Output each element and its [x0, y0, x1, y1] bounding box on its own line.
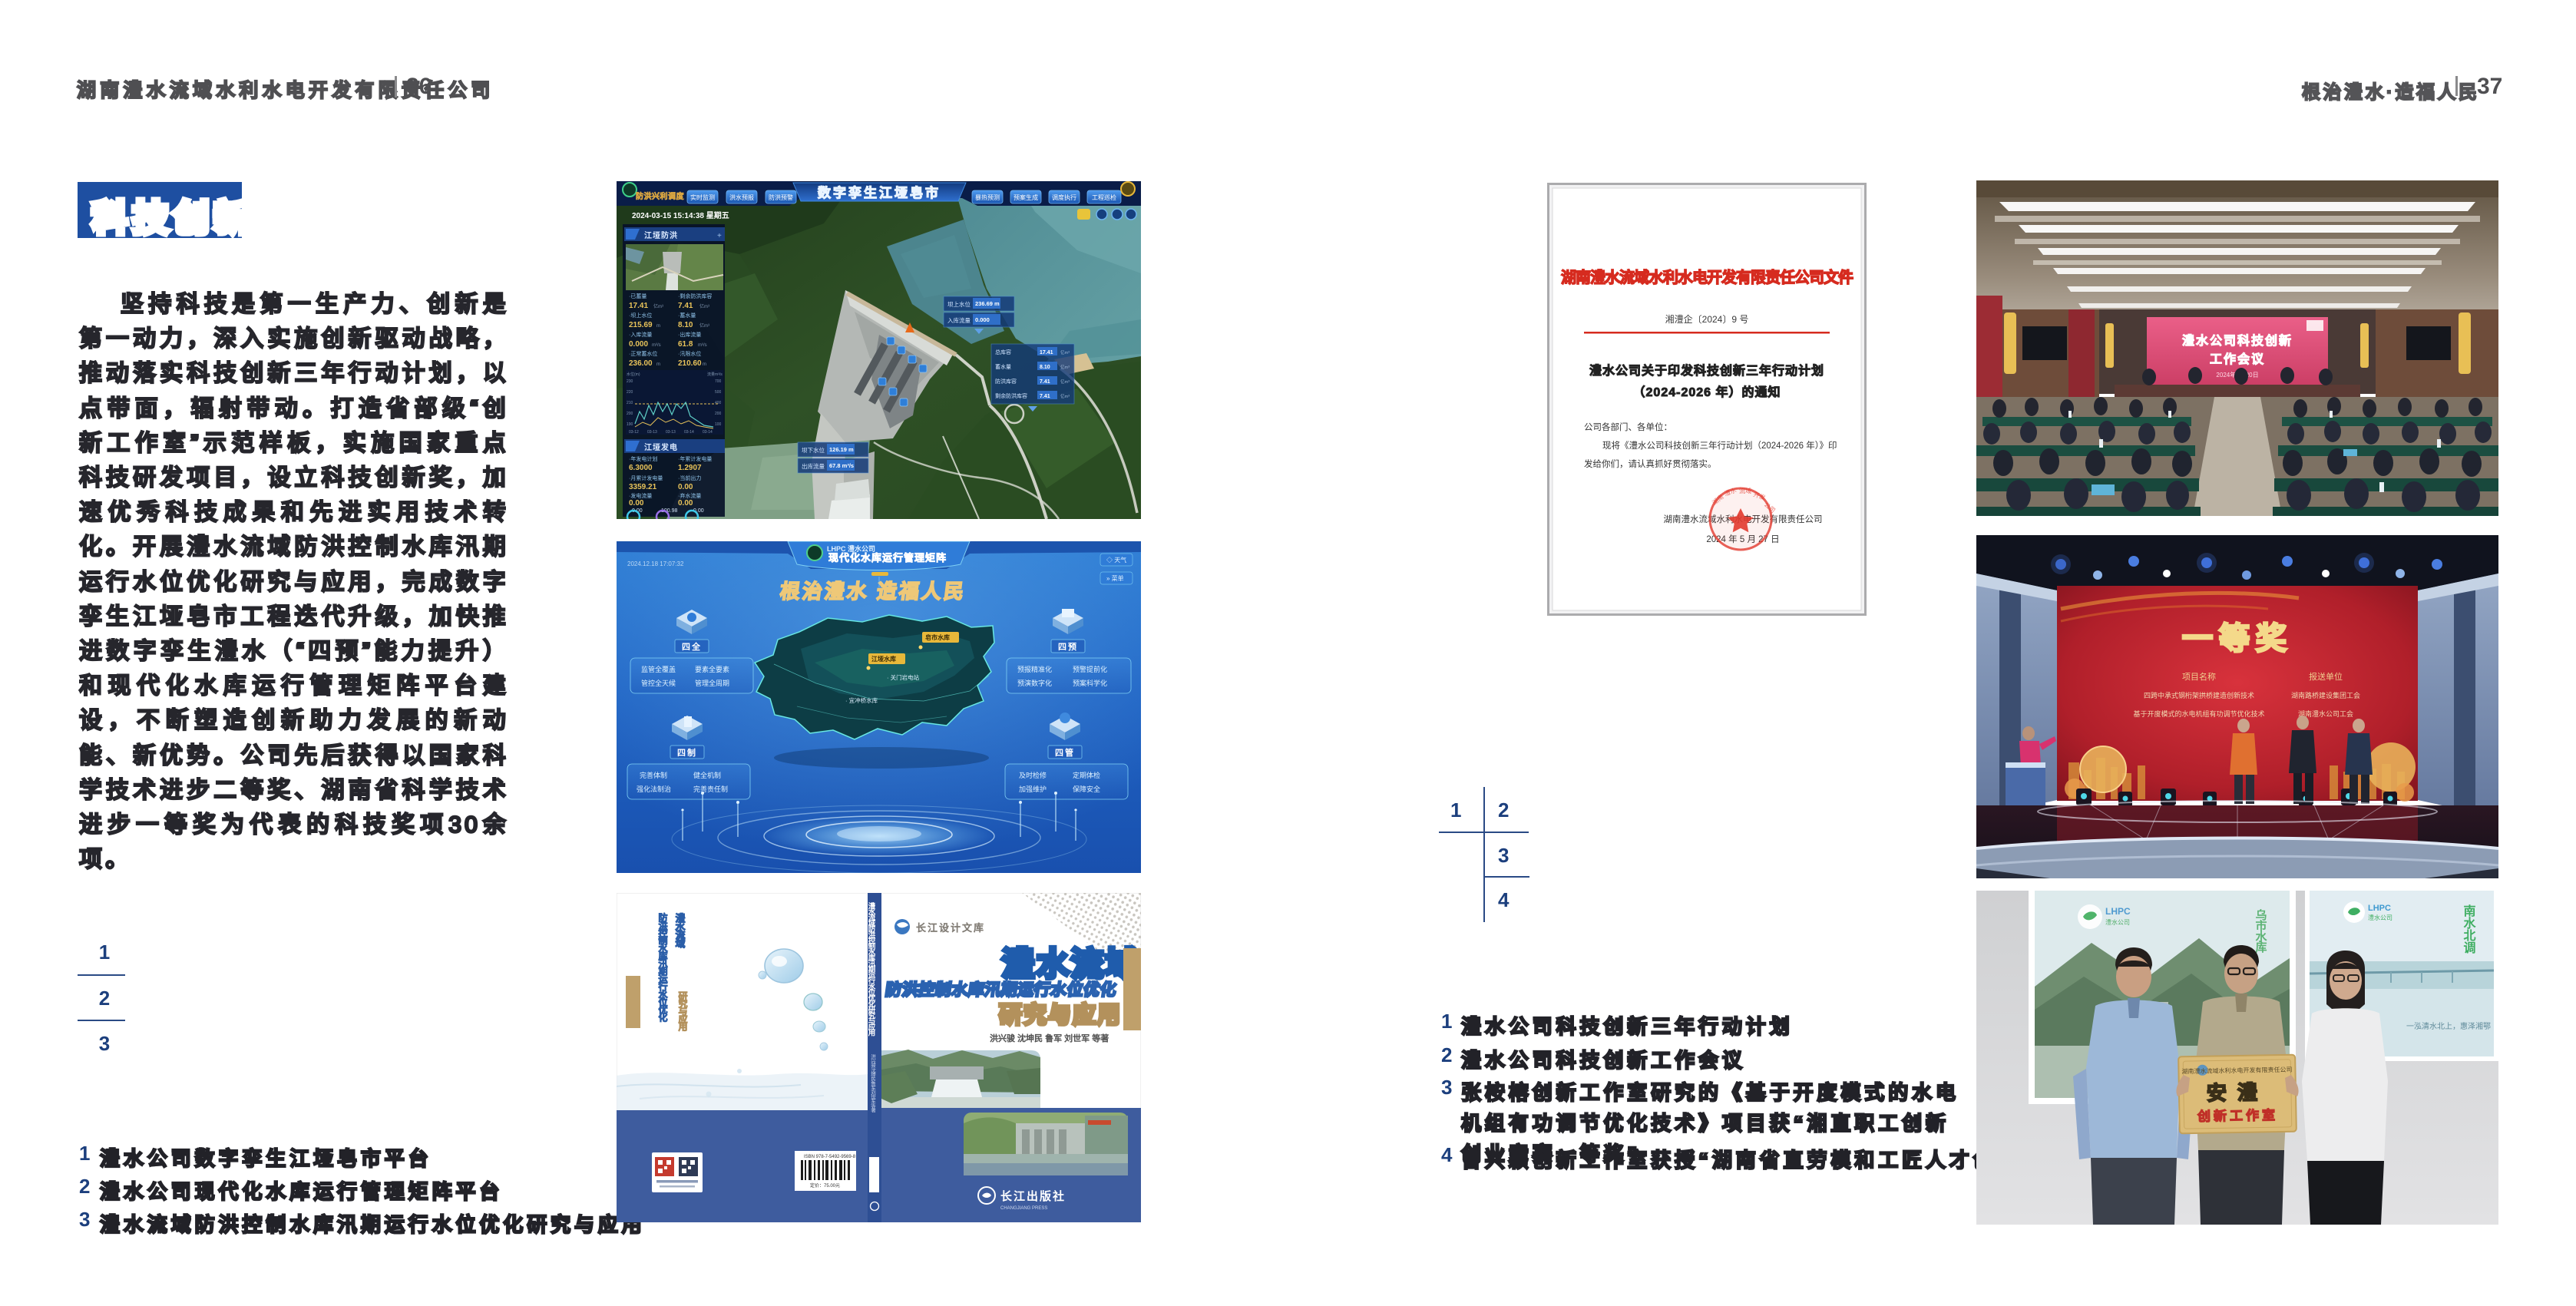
svg-text:根治澧水 造福人民: 根治澧水 造福人民 [779, 580, 967, 603]
svg-text:长江设计文库: 长江设计文库 [916, 922, 985, 934]
svg-text:水位(m): 水位(m) [627, 372, 640, 377]
svg-text:亿m³: 亿m³ [699, 303, 709, 309]
svg-text:江垭发电: 江垭发电 [644, 442, 678, 452]
svg-text:·年累计发电量: ·年累计发电量 [678, 455, 712, 462]
svg-text:（2024-2026 年）的通知: （2024-2026 年）的通知 [1633, 385, 1781, 399]
svg-text:m³/s: m³/s [698, 343, 707, 348]
svg-text:m: m [656, 362, 660, 367]
svg-text:项目名称: 项目名称 [2182, 671, 2216, 682]
svg-text:·年发电计划: ·年发电计划 [629, 455, 657, 462]
svg-text:一等奖: 一等奖 [2182, 622, 2293, 656]
svg-text:四预: 四预 [1058, 641, 1078, 652]
svg-text:乌市水库: 乌市水库 [2254, 908, 2267, 954]
svg-text:7.41: 7.41 [1040, 379, 1050, 385]
svg-text:加强维护: 加强维护 [1019, 785, 1047, 793]
svg-text:暴热预测: 暴热预测 [975, 193, 1000, 201]
svg-text:· 宜冲桥水库: · 宜冲桥水库 [845, 696, 878, 704]
svg-text:2024-03-15 15:14:38 星期五: 2024-03-15 15:14:38 星期五 [632, 210, 729, 220]
svg-text:澧水公司: 澧水公司 [2368, 914, 2392, 921]
svg-text:·正常蓄水位: ·正常蓄水位 [629, 350, 657, 357]
svg-text:洪兴骏 沈坤民 鲁军 刘世军 等著: 洪兴骏 沈坤民 鲁军 刘世军 等著 [990, 1033, 1109, 1043]
svg-text:2024.12.18 17:07:32: 2024.12.18 17:07:32 [627, 560, 684, 567]
svg-text:·月累计发电量: ·月累计发电量 [629, 474, 663, 481]
svg-text:m: m [703, 362, 706, 367]
svg-text:200: 200 [715, 412, 722, 416]
svg-text:·弃水流量: ·弃水流量 [678, 492, 701, 499]
svg-text:流量m³/s: 流量m³/s [707, 372, 723, 377]
svg-text:四跨中承式钢桁架拱桥建造创新技术: 四跨中承式钢桁架拱桥建造创新技术 [2144, 691, 2254, 699]
svg-text:强化法制治: 强化法制治 [637, 785, 671, 793]
svg-text:长江出版社: 长江出版社 [1000, 1189, 1066, 1203]
svg-text:预警提前化: 预警提前化 [1073, 665, 1107, 673]
svg-text:皂市水库: 皂市水库 [925, 633, 950, 641]
svg-text:61.8: 61.8 [678, 340, 693, 349]
svg-text:03-13: 03-13 [666, 430, 676, 435]
svg-text:及时检修: 及时检修 [1019, 771, 1047, 779]
svg-text:现将《澧水公司科技创新三年行动计划（2024-2026 年）: 现将《澧水公司科技创新三年行动计划（2024-2026 年）》印 [1602, 440, 1837, 451]
svg-text:出库流量: 出库流量 [802, 462, 825, 470]
svg-text:管控全天候: 管控全天候 [641, 679, 676, 687]
svg-text:6.3000: 6.3000 [629, 464, 653, 472]
svg-text:126.19 m: 126.19 m [829, 446, 854, 453]
svg-text:创新工作室: 创新工作室 [2197, 1107, 2278, 1124]
svg-text:剩余防洪库容: 剩余防洪库容 [995, 392, 1027, 399]
svg-text:研究与应用: 研究与应用 [999, 1002, 1122, 1028]
svg-text:1.2907: 1.2907 [678, 464, 702, 472]
svg-text:基于开度模式的水电机组有功调节优化技术: 基于开度模式的水电机组有功调节优化技术 [2133, 709, 2264, 718]
svg-text:洪水预报: 洪水预报 [729, 193, 754, 201]
svg-text:湖南路桥建设集团工会: 湖南路桥建设集团工会 [2291, 691, 2360, 699]
svg-text:190: 190 [627, 422, 633, 427]
svg-text:0.00: 0.00 [629, 499, 644, 508]
svg-text:防洪控制水库汛期运行水位优化: 防洪控制水库汛期运行水位优化 [885, 980, 1118, 999]
svg-text:蓄水量: 蓄水量 [995, 363, 1011, 370]
svg-text:3359.21: 3359.21 [629, 483, 657, 491]
svg-text:江垭防洪: 江垭防洪 [644, 230, 678, 240]
svg-text:210: 210 [627, 401, 633, 405]
svg-text:四全: 四全 [682, 641, 702, 652]
svg-text:实时监测: 实时监测 [690, 193, 715, 201]
svg-text:一泓清水北上，惠泽湘鄂: 一泓清水北上，惠泽湘鄂 [2406, 1021, 2491, 1031]
svg-text:亿m³: 亿m³ [699, 322, 709, 329]
svg-text:防洪兴利调度: 防洪兴利调度 [636, 191, 684, 201]
svg-text:LHPC: LHPC [2105, 906, 2131, 917]
svg-text:8.10: 8.10 [678, 321, 693, 329]
svg-text:·已蓄量: ·已蓄量 [629, 293, 646, 299]
svg-text:现代化水库运行管理矩阵: 现代化水库运行管理矩阵 [828, 552, 947, 564]
svg-text:400: 400 [715, 401, 722, 405]
svg-text:湖南澧水流域水利水电开发有限责任公司文件: 湖南澧水流域水利水电开发有限责任公司文件 [1561, 268, 1853, 286]
svg-text:7.41: 7.41 [678, 302, 693, 310]
svg-text:亿m³: 亿m³ [1060, 393, 1070, 399]
svg-text:·当前出力: ·当前出力 [678, 474, 701, 481]
svg-text:定期体检: 定期体检 [1073, 771, 1100, 779]
svg-text:·发电流量: ·发电流量 [629, 492, 652, 499]
svg-text:m: m [656, 324, 660, 329]
svg-text:报送单位: 报送单位 [2309, 671, 2343, 682]
svg-text:8.10: 8.10 [1040, 365, 1050, 370]
svg-text:预案生成: 预案生成 [1014, 193, 1038, 201]
svg-text:03-12: 03-12 [629, 430, 639, 435]
svg-text:健全机制: 健全机制 [693, 771, 721, 779]
svg-text:工作会议: 工作会议 [2210, 352, 2265, 366]
svg-text:236.00: 236.00 [629, 359, 653, 368]
svg-text:200: 200 [627, 412, 633, 416]
svg-text:发给你们，请认真抓好贯彻落实。: 发给你们，请认真抓好贯彻落实。 [1584, 458, 1717, 469]
svg-text:澧水流域防洪控制水库汛期运行水位优化研究与应用: 澧水流域防洪控制水库汛期运行水位优化研究与应用 [867, 901, 877, 1037]
svg-text:500: 500 [715, 390, 722, 395]
svg-text:调度执行: 调度执行 [1052, 193, 1076, 201]
svg-text:安澧: 安澧 [2207, 1080, 2269, 1104]
svg-text:7.41: 7.41 [1040, 394, 1050, 399]
svg-text:0.00: 0.00 [678, 499, 693, 508]
svg-text:定价：75.00元: 定价：75.00元 [810, 1182, 840, 1189]
svg-text:CHANGJIANG PRESS: CHANGJIANG PRESS [1000, 1206, 1047, 1211]
svg-text:保障安全: 保障安全 [1073, 785, 1100, 793]
svg-text:四管: 四管 [1055, 747, 1075, 758]
svg-text:江垭水库: 江垭水库 [871, 655, 896, 663]
svg-text:» 菜单: » 菜单 [1106, 574, 1124, 582]
svg-text:坝下水位: 坝下水位 [802, 446, 825, 454]
svg-text:700: 700 [715, 379, 722, 384]
svg-text:67.8 m³/s: 67.8 m³/s [829, 462, 854, 469]
svg-text:流域: 流域 [1739, 487, 1751, 494]
svg-text:· 关门岩电站: · 关门岩电站 [887, 673, 920, 681]
svg-text:17.41: 17.41 [1040, 350, 1053, 355]
svg-text:210.60: 210.60 [678, 359, 702, 368]
svg-text:防洪库容: 防洪库容 [995, 378, 1017, 385]
svg-text:监管全覆盖: 监管全覆盖 [641, 665, 676, 673]
svg-text:坝上水位: 坝上水位 [947, 300, 971, 308]
svg-text:总库容: 总库容 [995, 349, 1011, 355]
svg-text:澧水公司关于印发科技创新三年行动计划: 澧水公司关于印发科技创新三年行动计划 [1589, 363, 1824, 378]
svg-text:◇ 天气: ◇ 天气 [1106, 556, 1126, 564]
svg-text:工程巡检: 工程巡检 [1092, 193, 1116, 201]
svg-text:澧水流域: 澧水流域 [1002, 946, 1140, 982]
svg-text:澧水公司: 澧水公司 [2105, 918, 2130, 926]
svg-text:+: + [717, 232, 722, 240]
svg-text:03-14: 03-14 [703, 430, 713, 435]
svg-text:03-13: 03-13 [647, 430, 657, 435]
svg-text:100: 100 [715, 422, 722, 427]
svg-text:入库流量: 入库流量 [947, 316, 971, 324]
svg-text:公司各部门、各单位：: 公司各部门、各单位： [1584, 422, 1672, 432]
svg-text:四制: 四制 [677, 747, 697, 758]
svg-text:0.000: 0.000 [975, 316, 990, 323]
svg-text:预报精准化: 预报精准化 [1017, 665, 1052, 673]
svg-text:亿m³: 亿m³ [1060, 349, 1070, 355]
svg-text:研究与应用: 研究与应用 [677, 991, 688, 1032]
svg-text:·汛限水位: ·汛限水位 [678, 350, 701, 357]
svg-text:数字孪生江垭皂市: 数字孪生江垭皂市 [818, 185, 941, 200]
svg-text:17.41: 17.41 [629, 302, 648, 310]
svg-text:LHPC: LHPC [2368, 904, 2391, 913]
svg-text:南水北调: 南水北调 [2462, 904, 2476, 954]
svg-text:管理全周期: 管理全周期 [695, 679, 729, 687]
svg-text:·坝上水位: ·坝上水位 [629, 312, 652, 319]
svg-text:亿m³: 亿m³ [1060, 379, 1070, 385]
svg-text:澧水流域: 澧水流域 [674, 912, 686, 949]
svg-text:230: 230 [627, 379, 633, 384]
svg-text:预演数字化: 预演数字化 [1017, 679, 1052, 687]
svg-text:03-14: 03-14 [684, 430, 694, 435]
svg-text:亿m³: 亿m³ [653, 303, 663, 309]
svg-text:防洪控制水库汛期运行水位优化: 防洪控制水库汛期运行水位优化 [657, 912, 668, 1023]
svg-text:·入库流量: ·入库流量 [629, 331, 652, 338]
svg-text:220: 220 [627, 390, 633, 395]
svg-text:·剩余防洪库容: ·剩余防洪库容 [678, 293, 712, 299]
svg-text:完善体制: 完善体制 [640, 771, 667, 779]
svg-text:防洪预警: 防洪预警 [769, 193, 793, 201]
svg-text:·蓄水量: ·蓄水量 [678, 312, 696, 319]
svg-text:0.000: 0.000 [629, 340, 648, 349]
svg-text:湘澧企〔2024〕9 号: 湘澧企〔2024〕9 号 [1665, 313, 1749, 325]
svg-text:亿m³: 亿m³ [1060, 364, 1070, 370]
svg-text:0.00: 0.00 [678, 483, 693, 491]
svg-text:236.69 m: 236.69 m [975, 300, 1000, 307]
svg-text:完善责任制: 完善责任制 [693, 785, 728, 793]
svg-text:215.69: 215.69 [629, 321, 653, 329]
svg-text:预案科学化: 预案科学化 [1073, 679, 1107, 687]
svg-text:澧水公司科技创新: 澧水公司科技创新 [2182, 333, 2293, 348]
svg-text:·出库流量: ·出库流量 [678, 331, 701, 338]
svg-text:要素全要素: 要素全要素 [695, 665, 729, 673]
svg-text:ISBN 978-7-5492-9569-8: ISBN 978-7-5492-9569-8 [804, 1155, 856, 1159]
svg-text:湖南澧水公司工会: 湖南澧水公司工会 [2298, 709, 2353, 718]
svg-text:m³/s: m³/s [652, 343, 661, 348]
